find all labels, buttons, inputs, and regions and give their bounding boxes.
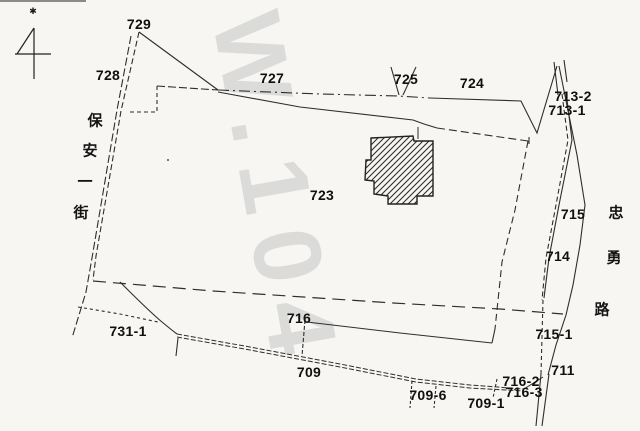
street-name-char-保安一街: 街 bbox=[73, 202, 88, 223]
parcel-label-724: 724 bbox=[460, 75, 484, 91]
parcel-label-711: 711 bbox=[551, 362, 575, 378]
parcel-label-709-6: 709-6 bbox=[409, 387, 446, 403]
street-name-char-忠勇路: 勇 bbox=[606, 247, 621, 268]
parcel-label-716: 716 bbox=[287, 310, 311, 326]
street-name-char-忠勇路: 路 bbox=[594, 299, 609, 320]
cadastral-map: W.104 bbox=[0, 0, 640, 431]
parcel-label-715: 715 bbox=[561, 206, 585, 222]
parcel-label-713-1: 713-1 bbox=[548, 102, 585, 118]
parcel-label-731-1: 731-1 bbox=[109, 323, 146, 339]
street-name-char-保安一街: 保 bbox=[87, 110, 102, 131]
parcel-label-709-1: 709-1 bbox=[467, 395, 504, 411]
labels-layer: ✱ 729728727725724713-2713-1723715714715-… bbox=[0, 0, 640, 431]
parcel-label-714: 714 bbox=[546, 248, 570, 264]
north-star-icon: ✱ bbox=[29, 7, 37, 17]
street-name-char-忠勇路: 忠 bbox=[608, 202, 623, 223]
parcel-label-725: 725 bbox=[394, 71, 418, 87]
parcel-label-727: 727 bbox=[260, 70, 284, 86]
parcel-label-716-3: 716-3 bbox=[505, 384, 542, 400]
parcel-label-728: 728 bbox=[96, 67, 120, 83]
street-name-char-保安一街: 安 bbox=[82, 140, 97, 161]
parcel-label-715-1: 715-1 bbox=[535, 326, 572, 342]
parcel-label-709: 709 bbox=[297, 364, 321, 380]
parcel-label-723: 723 bbox=[310, 187, 334, 203]
street-name-char-保安一街: 一 bbox=[77, 171, 92, 192]
parcel-label-729: 729 bbox=[127, 16, 151, 32]
